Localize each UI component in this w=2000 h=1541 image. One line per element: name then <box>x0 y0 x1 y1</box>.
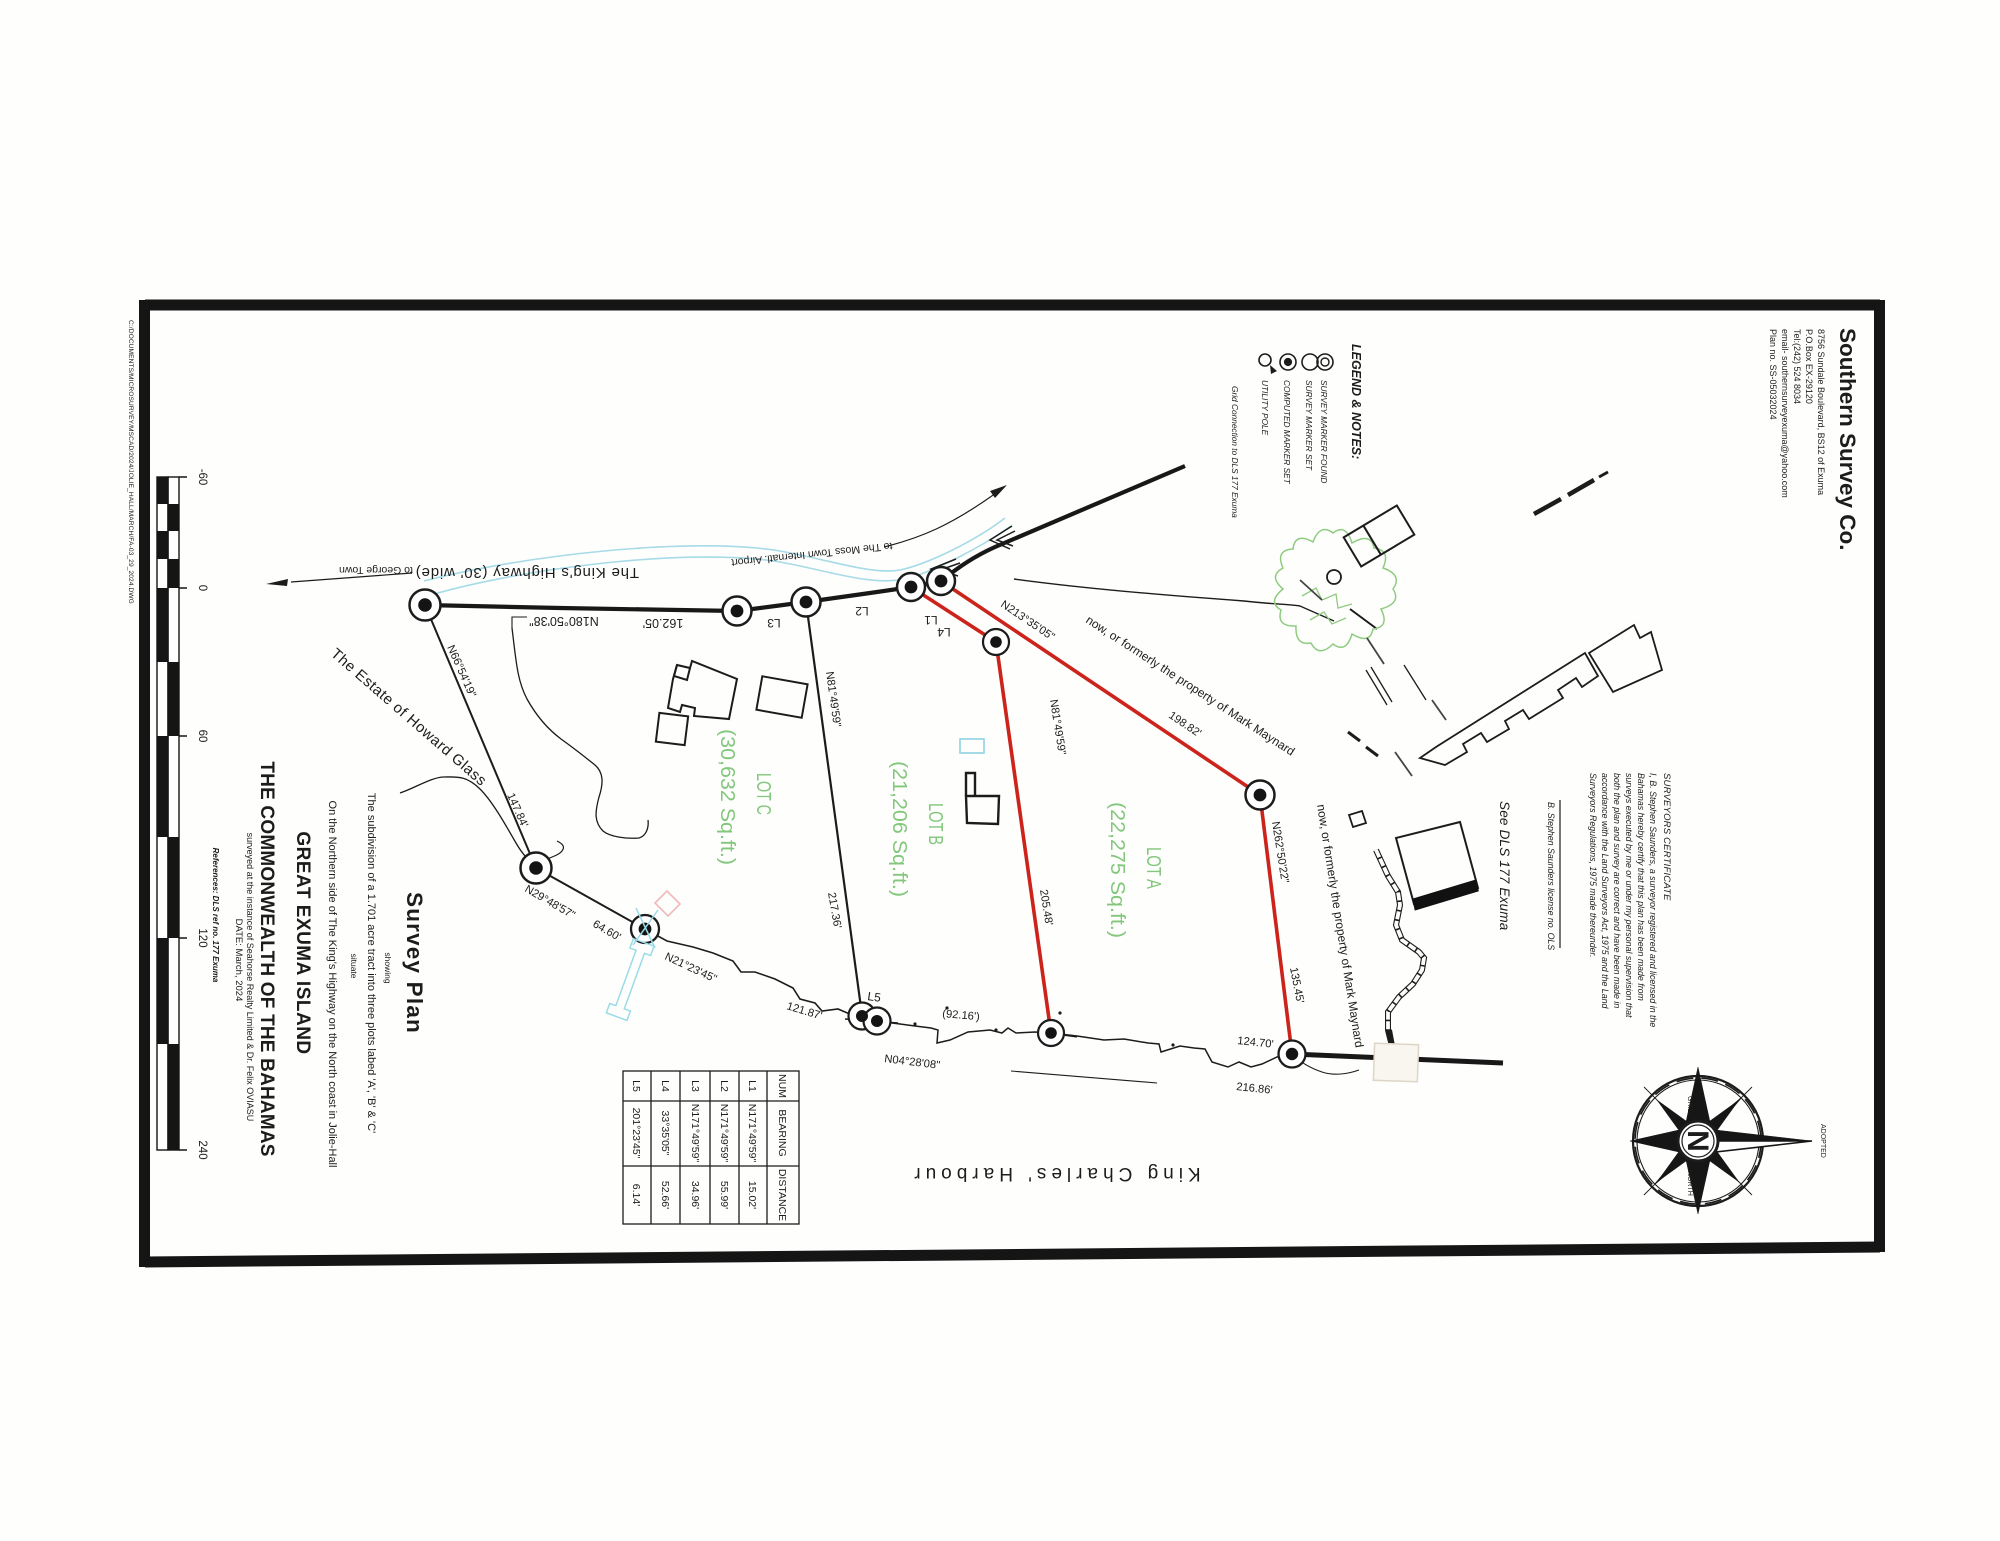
svg-text:(21,206 Sq.ft.): (21,206 Sq.ft.) <box>888 761 910 897</box>
svg-text:BEARING: BEARING <box>776 1109 788 1156</box>
svg-text:N: N <box>1681 1130 1714 1152</box>
svg-text:SURVEYORS CERTIFICATE: SURVEYORS CERTIFICATE <box>1661 773 1672 901</box>
svg-text:LEGEND & NOTES:: LEGEND & NOTES: <box>1349 344 1363 459</box>
svg-text:L4: L4 <box>937 625 951 639</box>
svg-text:accordance with the Land Surve: accordance with the Land Surveyors Act, … <box>1600 773 1610 1009</box>
svg-text:situate: situate <box>349 953 359 978</box>
svg-text:Bahamas hereby certify that th: Bahamas hereby certify that this plan ha… <box>1636 773 1646 1001</box>
svg-text:N81°49'59": N81°49'59" <box>1047 699 1068 756</box>
svg-text:now, or formerly the property: now, or formerly the property of Mark Ma… <box>1083 613 1297 759</box>
svg-text:References: DLS ref no. 177 Ex: References: DLS ref no. 177 Exuma <box>211 848 220 983</box>
svg-text:L2: L2 <box>855 604 869 618</box>
svg-text:N29°48'57": N29°48'57" <box>523 883 578 921</box>
svg-text:N81°49'59": N81°49'59" <box>823 671 843 728</box>
svg-text:33°35'05": 33°35'05" <box>659 1111 671 1156</box>
svg-text:L3: L3 <box>689 1080 701 1092</box>
svg-text:The King's Highway (30' wide): The King's Highway (30' wide) <box>415 564 639 581</box>
svg-text:135.45': 135.45' <box>1287 966 1306 1004</box>
svg-text:now, or formerly the property: now, or formerly the property of Mark Ma… <box>1314 803 1366 1048</box>
svg-text:162.05': 162.05' <box>643 616 684 630</box>
svg-text:to The Moss Town Internatl. Ai: to The Moss Town Internatl. Airport <box>731 540 893 569</box>
svg-text:64.60': 64.60' <box>591 918 623 943</box>
svg-text:King Charles' Harbour: King Charles' Harbour <box>909 1163 1200 1184</box>
svg-text:N171°49'59": N171°49'59" <box>689 1104 701 1163</box>
svg-text:LOT A: LOT A <box>1142 847 1164 889</box>
svg-text:N171°49'59": N171°49'59" <box>718 1104 730 1163</box>
svg-text:L2: L2 <box>718 1080 730 1092</box>
svg-text:both the plan and survey are c: both the plan and survey are correct and… <box>1612 773 1622 1008</box>
svg-text:205.48': 205.48' <box>1037 889 1055 927</box>
svg-text:-60: -60 <box>196 469 208 486</box>
svg-text:SURVEY MARKER FOUND: SURVEY MARKER FOUND <box>1319 380 1329 483</box>
svg-text:UTILITY POLE: UTILITY POLE <box>1260 380 1270 436</box>
svg-text:NORTH: NORTH <box>1686 1171 1693 1196</box>
svg-text:L1: L1 <box>746 1080 758 1092</box>
svg-text:See DLS 177 Exuma: See DLS 177 Exuma <box>1497 801 1512 931</box>
svg-text:Plan no. SS-05032024: Plan no. SS-05032024 <box>1768 329 1778 420</box>
svg-text:GREAT EXUMA ISLAND: GREAT EXUMA ISLAND <box>292 831 313 1054</box>
svg-text:surveys executed by me or unde: surveys executed by me or under my perso… <box>1624 773 1634 1018</box>
svg-text:I, B. Stephen Saunders, a surv: I, B. Stephen Saunders, a surveyor regis… <box>1648 773 1658 1027</box>
svg-text:Survey Plan: Survey Plan <box>402 892 427 1034</box>
svg-text:55.99': 55.99' <box>718 1181 730 1209</box>
svg-text:email- southernsurveyexuma@yah: email- southernsurveyexuma@yahoo.com <box>1780 329 1790 498</box>
svg-text:to George Town: to George Town <box>339 564 413 576</box>
svg-text:L5: L5 <box>630 1080 642 1092</box>
svg-text:COMPUTED MARKER SET: COMPUTED MARKER SET <box>1282 380 1292 485</box>
svg-text:(22,275 Sq.ft.): (22,275 Sq.ft.) <box>1106 802 1128 938</box>
svg-text:L1: L1 <box>924 613 938 627</box>
svg-text:240: 240 <box>196 1140 208 1159</box>
svg-text:Grid Connection to DLS 177 Ex: Grid Connection to DLS 177 Exuma <box>1230 386 1240 518</box>
svg-text:201°23'45": 201°23'45" <box>630 1108 642 1159</box>
svg-text:LOT C: LOT C <box>752 773 774 815</box>
svg-text:120: 120 <box>196 928 208 947</box>
svg-text:GRID: GRID <box>1686 1096 1693 1114</box>
svg-text:N21°23'45": N21°23'45" <box>663 951 719 986</box>
svg-text:217.36': 217.36' <box>825 891 843 929</box>
svg-text:0: 0 <box>196 585 208 591</box>
svg-text:6.14': 6.14' <box>630 1184 642 1206</box>
svg-text:147.84': 147.84' <box>504 791 530 829</box>
svg-text:ADOPTED: ADOPTED <box>1819 1124 1826 1158</box>
svg-text:52.66': 52.66' <box>659 1181 671 1209</box>
svg-text:N171°49'59": N171°49'59" <box>746 1104 758 1163</box>
svg-text:60: 60 <box>196 730 208 743</box>
svg-text:(92.16'): (92.16') <box>942 1008 981 1023</box>
svg-text:L5: L5 <box>867 989 882 1005</box>
svg-text:216.86': 216.86' <box>1236 1081 1273 1097</box>
svg-text:showing: showing <box>383 952 393 983</box>
svg-text:121.87': 121.87' <box>785 1000 823 1022</box>
svg-text:15.02': 15.02' <box>746 1181 758 1209</box>
svg-text:THE COMMONWEALTH OF THE BAHAMA: THE COMMONWEALTH OF THE BAHAMAS <box>256 761 277 1156</box>
svg-text:C:/DOCUMENTS/MICROSURVEY/MSCAD: C:/DOCUMENTS/MICROSURVEY/MSCAD/2024/JOLI… <box>127 320 134 604</box>
svg-text:L4: L4 <box>659 1080 671 1092</box>
svg-text:NUM: NUM <box>776 1074 788 1098</box>
svg-text:8756 Sundale Boulevard, BS12 o: 8756 Sundale Boulevard, BS12 of Exuma <box>1816 329 1826 495</box>
svg-text:DISTANCE: DISTANCE <box>776 1169 788 1221</box>
svg-text:(30,632 Sq.ft.): (30,632 Sq.ft.) <box>716 729 738 865</box>
svg-text:N262°50'22": N262°50'22" <box>1269 821 1291 884</box>
svg-text:N180°50'38": N180°50'38" <box>529 614 599 628</box>
svg-text:124.70': 124.70' <box>1237 1035 1274 1051</box>
svg-text:L3: L3 <box>767 616 781 630</box>
svg-text:N04°28'08": N04°28'08" <box>884 1053 941 1072</box>
svg-text:surveyed at the instance of Se: surveyed at the instance of Seahorse Rea… <box>245 833 255 1122</box>
svg-text:LOT B: LOT B <box>924 803 946 845</box>
svg-text:Tel:(242) 524 8034: Tel:(242) 524 8034 <box>1792 329 1802 404</box>
svg-text:B. Stephen Saunders license no: B. Stephen Saunders license no. OLS <box>1546 802 1556 950</box>
svg-text:34.96': 34.96' <box>689 1181 701 1209</box>
svg-text:The subdivision of a 1.701 acr: The subdivision of a 1.701 acre tract in… <box>365 793 377 1133</box>
svg-text:Southern Survey Co.: Southern Survey Co. <box>1835 328 1860 551</box>
svg-text:SURVEY MARKER SET: SURVEY MARKER SET <box>1304 380 1314 471</box>
svg-text:P.O.Box EX-29120: P.O.Box EX-29120 <box>1804 329 1814 404</box>
svg-text:On the Northern side of The Ki: On the Northern side of The King's Highw… <box>326 801 338 1168</box>
svg-text:DATE: March, 2024: DATE: March, 2024 <box>233 919 244 1002</box>
svg-text:Surveyors Regulations, 1975 ma: Surveyors Regulations, 1975 made thereun… <box>1588 773 1598 958</box>
